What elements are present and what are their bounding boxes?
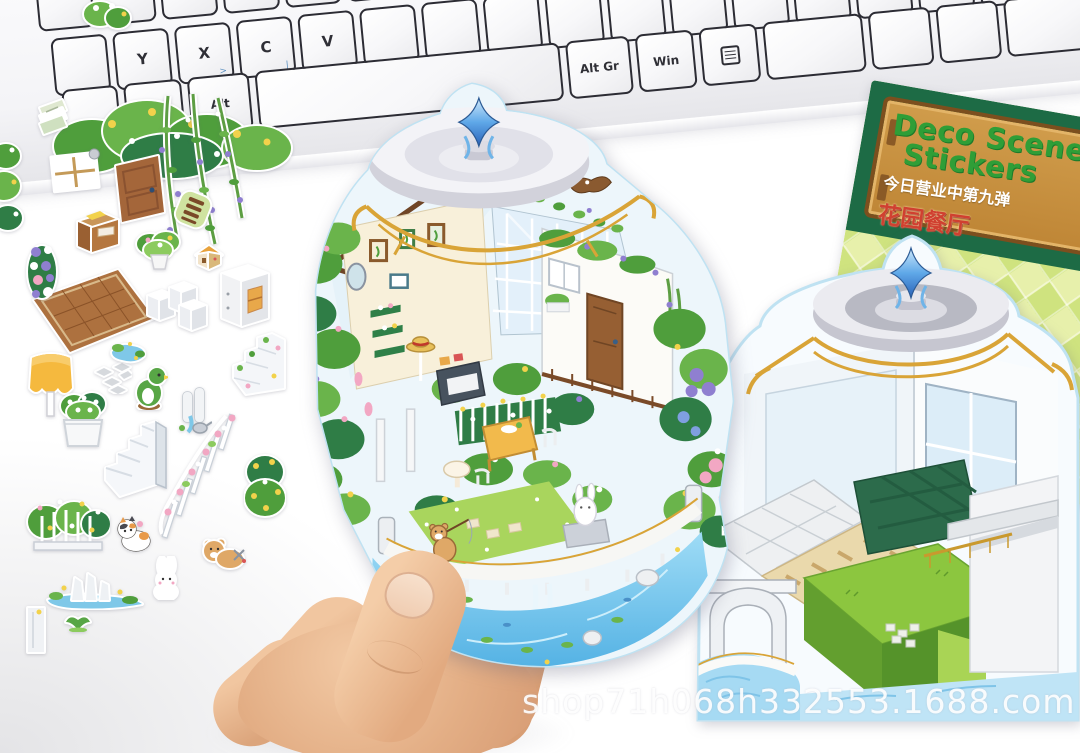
key-blank (935, 0, 1002, 64)
right-edge-fence (719, 484, 748, 537)
pond-piece-sticker (108, 336, 148, 364)
key-x-label: X (198, 44, 211, 63)
paper-stack-sticker (36, 96, 70, 140)
key-altgr-label: Alt Gr (579, 59, 619, 77)
green-bush-sticker (244, 452, 286, 520)
rose-fence-sticker (148, 408, 248, 543)
writing-desk-sticker (74, 206, 122, 256)
key-y-label: Y (136, 50, 149, 69)
knuckle-crease (363, 634, 427, 680)
garden-bench-sticker (170, 186, 218, 234)
window-sticker (48, 148, 104, 196)
product-photo: Y X> C| V Alt Alt Gr Win (0, 0, 1080, 753)
rock-pool-sticker (42, 572, 147, 610)
white-bunny-sticker (150, 556, 182, 600)
stepping-stones-sticker (92, 362, 132, 394)
key-c-label: C (260, 38, 273, 57)
key-blank (762, 13, 867, 80)
flower-stairs-sticker (228, 328, 290, 396)
white-cabinet-sticker (216, 260, 274, 334)
edge-plant-sticker (0, 136, 30, 236)
flower-garland-sticker (24, 242, 66, 302)
key-win-label: Win (653, 53, 680, 69)
calico-cat-sticker (114, 516, 152, 552)
teddy-bear-sticker (200, 536, 246, 570)
arch-piece-sticker (22, 602, 50, 654)
sprout-sticker (64, 612, 92, 632)
cut-plant-sticker (82, 0, 132, 36)
thumb-nail (379, 565, 441, 625)
flower-fence-sticker (26, 496, 110, 554)
back-wall (341, 198, 492, 389)
shelf-blocks-sticker (144, 276, 208, 334)
watermark: shop71h068h332553.1688.com (522, 682, 1075, 721)
key-blank (867, 7, 934, 71)
key-v-label: V (321, 32, 334, 51)
key-blank (1003, 0, 1080, 57)
context-menu-icon (720, 45, 741, 66)
topiary-sticker (134, 366, 168, 410)
garden-scene-sticker (286, 78, 748, 670)
